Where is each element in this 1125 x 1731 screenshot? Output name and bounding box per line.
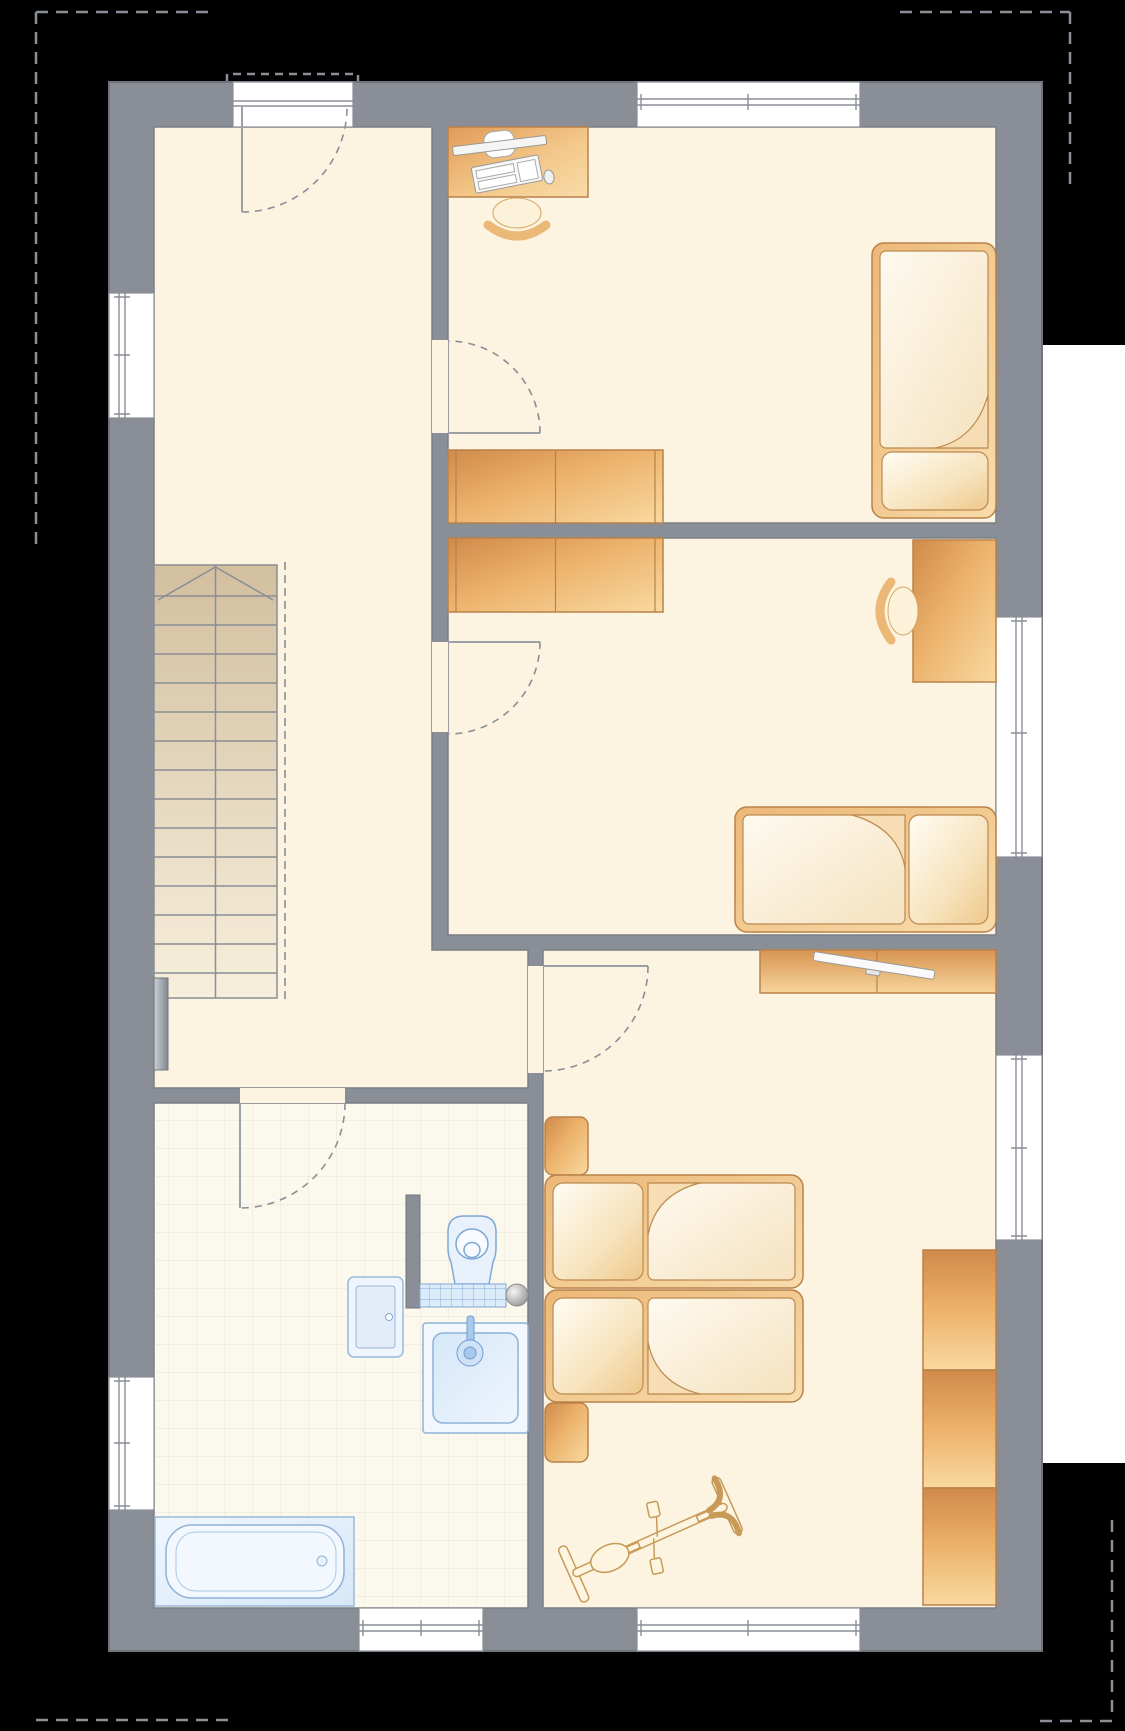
window-left-hall	[109, 293, 154, 418]
toilet	[448, 1216, 496, 1284]
wardrobe	[448, 450, 663, 523]
bathroom-door-opening	[240, 1088, 345, 1103]
blanket	[743, 815, 905, 924]
double-bed-upper	[545, 1175, 803, 1288]
tub-drain	[317, 1556, 327, 1566]
pillow	[882, 452, 988, 510]
window-top-child-room-1	[637, 82, 860, 127]
pillow	[553, 1183, 643, 1280]
staircase	[154, 562, 285, 1002]
tiled-ledge	[420, 1284, 506, 1307]
window-bottom-bathroom	[359, 1608, 483, 1651]
desk	[913, 540, 996, 682]
window-right-child-room-2	[996, 617, 1042, 857]
entrance-canopy-dashed	[227, 74, 358, 82]
bike-pedal	[646, 1501, 660, 1518]
hall-fixtures	[154, 978, 168, 1070]
double-bed-lower	[545, 1290, 803, 1402]
window-right-bedroom	[996, 1055, 1042, 1240]
bike-pedal	[650, 1558, 664, 1575]
entrance-door-opening	[233, 82, 353, 127]
window-bottom-bedroom	[637, 1608, 860, 1651]
radiator	[154, 978, 168, 1070]
bathroom-cabinet	[348, 1277, 403, 1357]
building	[109, 82, 1042, 1651]
toilet-partition-wall	[406, 1195, 420, 1308]
bedroom-door-opening	[528, 966, 543, 1073]
floor-plan	[0, 0, 1125, 1731]
nightstand	[545, 1117, 588, 1175]
pillow	[909, 815, 988, 924]
child-room-1-door-opening	[432, 340, 448, 433]
window-left-bathroom	[109, 1377, 154, 1510]
child-room-2-door-opening	[432, 642, 448, 732]
bathtub	[155, 1517, 354, 1606]
blanket	[880, 251, 988, 448]
floor-drain	[506, 1284, 528, 1306]
wardrobe	[448, 538, 663, 612]
floor-plan-drawing	[0, 0, 1125, 1731]
single-bed	[735, 807, 996, 932]
single-bed	[872, 243, 996, 518]
wardrobe-3-section	[923, 1250, 996, 1605]
nightstand	[545, 1403, 588, 1462]
washbasin	[423, 1316, 528, 1433]
pillow	[553, 1298, 643, 1394]
